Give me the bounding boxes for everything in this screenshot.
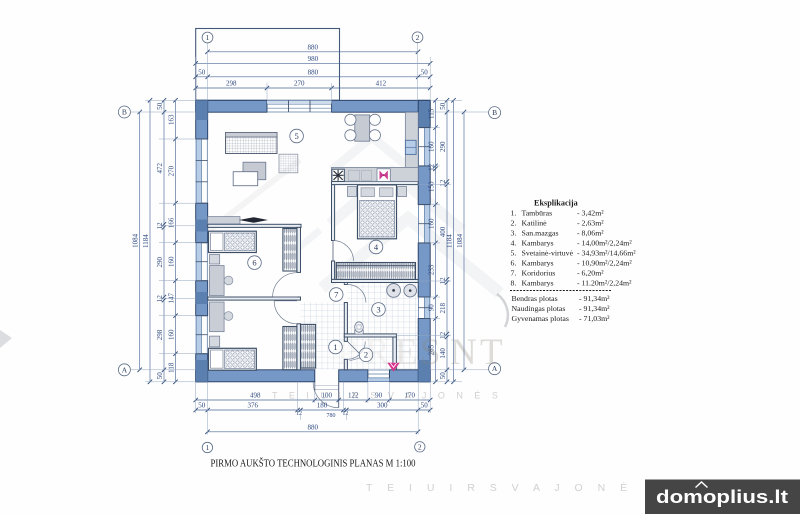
svg-text:N: N [450,332,477,373]
svg-text:50: 50 [198,68,206,76]
svg-text:12: 12 [428,163,436,171]
svg-text:270: 270 [168,165,176,176]
svg-text:B: B [122,108,127,117]
svg-text:Bendras plotas: Bendras plotas [512,294,558,303]
svg-text:780: 780 [327,413,336,419]
svg-text:- 91,34m²: - 91,34m² [579,294,610,303]
svg-text:- 71,03m²: - 71,03m² [579,314,610,323]
svg-text:290: 290 [156,256,164,267]
svg-text:880: 880 [308,423,319,431]
svg-text:Kambarys: Kambarys [522,259,554,268]
svg-text:- 10,90m²/2,24m²: - 10,90m²/2,24m² [577,259,632,268]
svg-text:290: 290 [439,141,447,152]
svg-text:50: 50 [198,402,206,410]
svg-text:3.: 3. [511,229,517,238]
svg-text:domoplius.lt: domoplius.lt [656,487,788,507]
svg-text:150: 150 [428,181,436,192]
svg-text:1.: 1. [511,209,517,218]
svg-text:8.: 8. [511,279,517,288]
svg-text:- 14,00m²/2,24m²: - 14,00m²/2,24m² [577,239,632,248]
svg-text:2: 2 [418,442,422,451]
svg-text:166: 166 [168,217,176,228]
svg-text:- 11.20m²/2,24m²: - 11.20m²/2,24m² [577,279,632,288]
svg-text:R: R [365,332,390,373]
svg-text:1: 1 [206,33,210,42]
svg-text:270: 270 [294,80,305,88]
svg-text:- 34,93m²/14,66m²: - 34,93m²/14,66m² [577,249,636,258]
svg-text:218: 218 [439,302,447,313]
svg-text:1184: 1184 [446,234,454,248]
svg-text:50: 50 [439,102,447,110]
svg-text:P: P [337,332,358,373]
svg-text:2.: 2. [511,219,517,228]
svg-text:Tambūras: Tambūras [522,209,553,218]
svg-text:Naudingas plotas: Naudingas plotas [512,304,566,313]
svg-text:T E I U I R S V A J O N Ė: T E I U I R S V A J O N Ė [366,481,633,494]
svg-text:2: 2 [416,33,420,42]
svg-text:6: 6 [252,258,256,268]
svg-text:E: E [395,332,418,373]
svg-text:12: 12 [439,179,447,187]
svg-text:T: T [480,332,503,373]
svg-text:7.: 7. [511,269,517,278]
svg-text:180: 180 [317,402,328,410]
svg-text:4.: 4. [511,239,517,248]
svg-text:Koridorius: Koridorius [522,269,556,278]
svg-text:160: 160 [428,141,436,152]
svg-text:980: 980 [308,55,319,63]
svg-text:- 6,20m²: - 6,20m² [577,269,604,278]
svg-text:163: 163 [168,114,176,125]
svg-text:Gyvenamas plotas: Gyvenamas plotas [512,314,569,323]
svg-text:Kambarys: Kambarys [522,279,554,288]
svg-text:233: 233 [428,264,436,275]
svg-text:498: 498 [250,392,261,400]
svg-text:Eksplikacija: Eksplikacija [534,199,578,208]
svg-text:50: 50 [156,372,164,380]
svg-text:- 2,63m²: - 2,63m² [577,219,604,228]
svg-text:50: 50 [421,402,429,410]
svg-text:412: 412 [376,80,387,88]
svg-text:5.: 5. [511,249,517,258]
svg-text:S: S [420,332,441,373]
svg-text:12: 12 [439,277,447,285]
svg-text:San.mazgas: San.mazgas [522,229,559,238]
svg-text:50: 50 [421,68,429,76]
svg-text:PIRMO AUKŠTO TECHNOLOGINIS: PIRMO AUKŠTO TECHNOLOGINIS PLANAS M 1:10… [211,458,416,470]
svg-text:B: B [492,108,497,117]
svg-text:880: 880 [308,43,319,51]
svg-text:298: 298 [226,80,237,88]
svg-text:Katilinė: Katilinė [522,219,548,228]
svg-text:160: 160 [168,329,176,340]
svg-text:12: 12 [296,411,302,417]
svg-text:Svetainė-virtuvė: Svetainė-virtuvė [522,249,574,258]
svg-text:90: 90 [428,304,436,312]
svg-text:118: 118 [168,362,176,373]
svg-text:1: 1 [206,443,210,452]
svg-text:300: 300 [377,402,388,410]
svg-text:880: 880 [308,68,319,76]
svg-text:7: 7 [334,289,338,299]
svg-text:5: 5 [294,131,298,141]
svg-text:A: A [122,365,128,374]
svg-text:1184: 1184 [142,234,150,248]
svg-text:160: 160 [428,218,436,229]
svg-text:115: 115 [428,108,436,119]
svg-text:- 3,42m²: - 3,42m² [577,209,604,218]
svg-text:376: 376 [247,402,258,410]
svg-text:- 91,34m²: - 91,34m² [579,304,610,313]
svg-text:Kambarys: Kambarys [522,239,554,248]
svg-text:6.: 6. [511,259,517,268]
svg-text:- 8,06m²: - 8,06m² [577,229,604,238]
svg-text:3: 3 [376,304,380,314]
svg-text:298: 298 [156,329,164,340]
svg-text:147: 147 [168,292,176,303]
svg-text:T E I U I R S V A J O N Ė: T E I U I R S V A J O N Ė S [272,391,502,401]
svg-text:1084: 1084 [132,233,140,248]
svg-text:472: 472 [156,162,164,173]
svg-text:50: 50 [156,102,164,110]
svg-text:160: 160 [168,256,176,267]
svg-text:1084: 1084 [456,233,464,248]
